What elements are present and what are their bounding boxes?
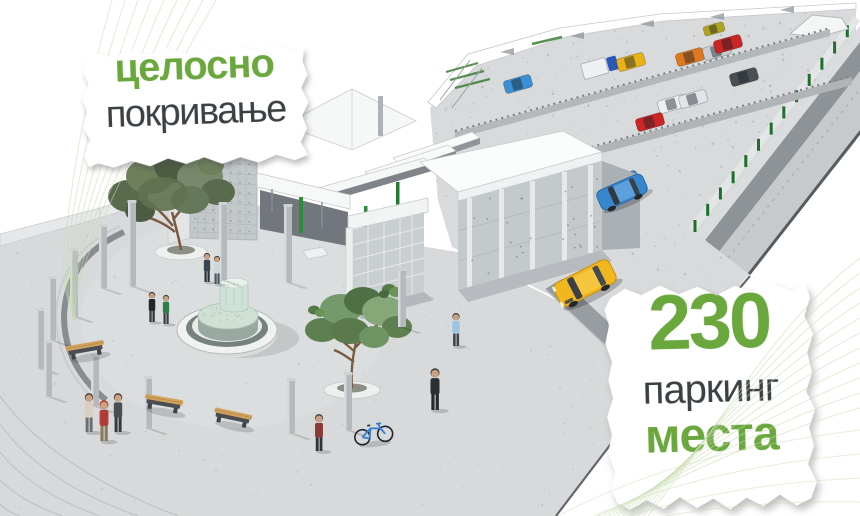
ramp-green-column <box>706 204 709 216</box>
ramp-green-column <box>833 42 836 54</box>
green-column <box>299 197 303 233</box>
poster: целосно покривање 230 паркинг места <box>0 0 860 516</box>
ramp-green-column <box>808 74 811 86</box>
coverage-callout-line1: целосно <box>81 42 308 90</box>
ramp-green-column <box>770 123 773 135</box>
parking-callout-line2: места <box>607 409 816 462</box>
ramp-green-column <box>782 106 785 118</box>
ramp-green-column <box>732 171 735 183</box>
parking-callout: 230 паркинг места <box>603 253 817 486</box>
parking-count: 230 <box>604 279 814 362</box>
ramp-green-column <box>694 220 697 232</box>
torn-paper: целосно покривање <box>81 42 311 170</box>
canopy-strip <box>318 158 432 195</box>
ramp-green-column <box>744 155 747 167</box>
torn-paper: 230 паркинг места <box>604 279 818 512</box>
ramp-green-column <box>757 139 760 151</box>
coverage-callout-line2: покривање <box>82 89 309 135</box>
parking-callout-line1: паркинг <box>606 366 815 411</box>
ramp-green-column <box>719 188 722 200</box>
ramp-green-column <box>820 58 823 70</box>
coverage-callout: целосно покривање <box>80 26 310 154</box>
